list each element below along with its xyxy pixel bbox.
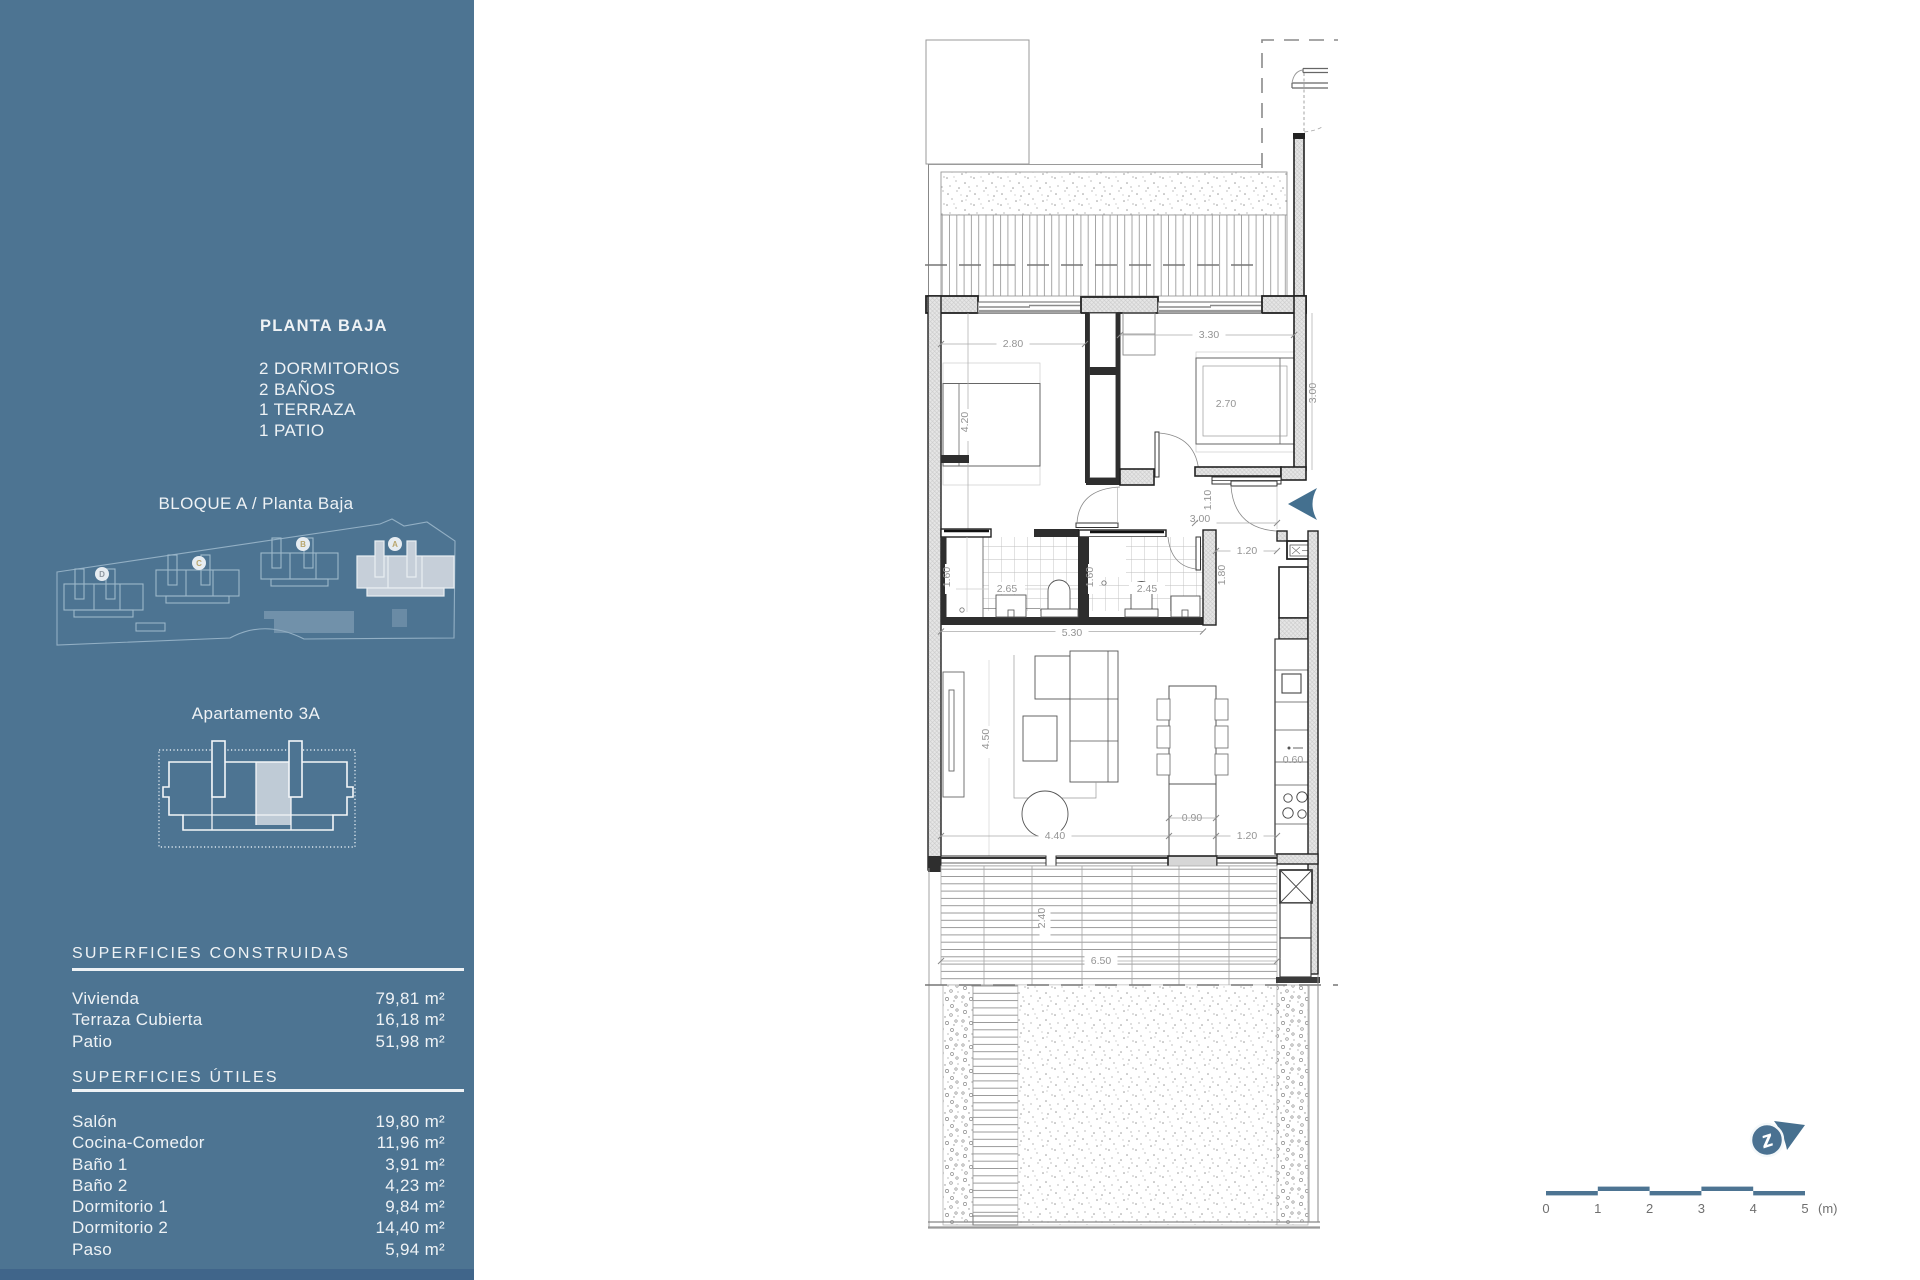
svg-text:1.60: 1.60 — [1084, 567, 1096, 588]
svg-text:1: 1 — [1594, 1201, 1601, 1216]
svg-text:4.50: 4.50 — [980, 729, 992, 750]
svg-text:(m): (m) — [1818, 1201, 1838, 1216]
svg-text:3.30: 3.30 — [1199, 329, 1220, 341]
svg-text:6.50: 6.50 — [1091, 955, 1112, 967]
svg-text:2.70: 2.70 — [1216, 398, 1237, 410]
svg-text:2.40: 2.40 — [1036, 908, 1048, 929]
svg-text:1.20: 1.20 — [1237, 545, 1258, 557]
svg-text:1.10: 1.10 — [1202, 490, 1214, 511]
svg-text:A: A — [392, 540, 398, 549]
svg-text:2: 2 — [1646, 1201, 1653, 1216]
svg-text:0: 0 — [1542, 1201, 1549, 1216]
svg-text:B: B — [300, 540, 306, 549]
svg-text:D: D — [99, 570, 105, 579]
svg-text:4.20: 4.20 — [959, 412, 971, 433]
svg-text:1.20: 1.20 — [1237, 830, 1258, 842]
svg-text:3: 3 — [1698, 1201, 1705, 1216]
svg-text:3.00: 3.00 — [1190, 513, 1211, 525]
svg-text:4.40: 4.40 — [1045, 830, 1066, 842]
svg-text:4: 4 — [1750, 1201, 1757, 1216]
svg-text:1.80: 1.80 — [1216, 565, 1228, 586]
svg-text:2.80: 2.80 — [1003, 338, 1024, 350]
svg-text:2.65: 2.65 — [997, 583, 1018, 595]
svg-text:1.60: 1.60 — [941, 567, 953, 588]
svg-text:5: 5 — [1801, 1201, 1808, 1216]
svg-text:C: C — [196, 559, 202, 568]
svg-text:5.30: 5.30 — [1062, 627, 1083, 639]
svg-text:2.45: 2.45 — [1137, 583, 1158, 595]
svg-text:3.00: 3.00 — [1307, 383, 1319, 404]
svg-text:0.60: 0.60 — [1283, 754, 1304, 766]
